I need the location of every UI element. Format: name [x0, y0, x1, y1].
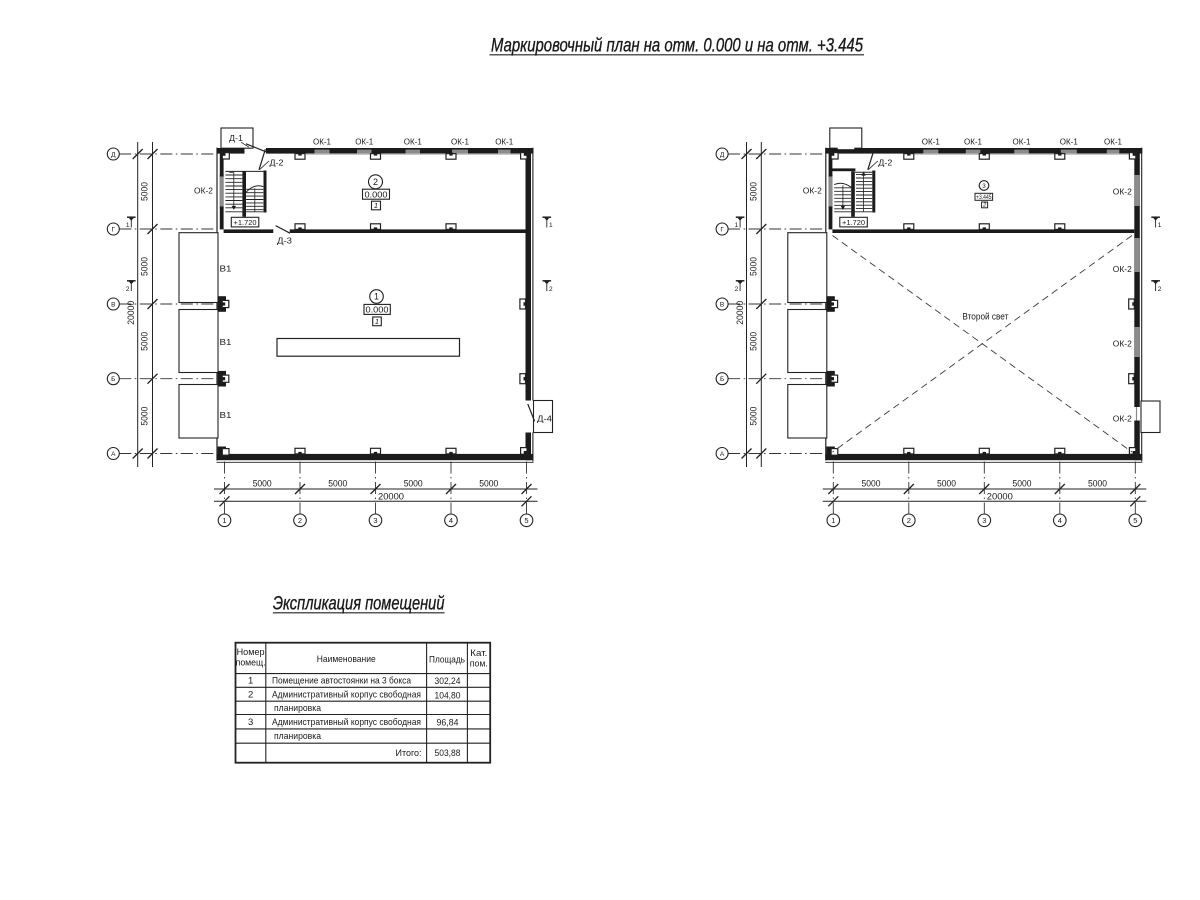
svg-text:96,84: 96,84: [437, 717, 459, 727]
svg-text:Д: Д: [111, 151, 116, 158]
svg-text:1: 1: [735, 222, 739, 229]
svg-text:1: 1: [248, 676, 253, 687]
svg-text:ОК-1: ОК-1: [964, 137, 982, 147]
svg-text:ОК-1: ОК-1: [451, 137, 469, 147]
svg-text:ОК-2: ОК-2: [803, 186, 822, 196]
svg-text:Д-4: Д-4: [537, 414, 552, 424]
svg-text:5000: 5000: [140, 182, 150, 201]
svg-text:302,24: 302,24: [435, 676, 461, 686]
svg-text:1: 1: [374, 292, 379, 302]
svg-text:3: 3: [373, 516, 377, 525]
svg-text:ОК-2: ОК-2: [194, 186, 213, 196]
svg-text:5000: 5000: [253, 478, 272, 488]
svg-text:Наименование: Наименование: [317, 654, 376, 665]
svg-text:планировка: планировка: [274, 731, 322, 741]
svg-text:В1: В1: [220, 264, 232, 274]
svg-text:Д: Д: [720, 151, 725, 158]
svg-text:Административный корпус свобод: Административный корпус свободная: [272, 717, 421, 727]
svg-text:5000: 5000: [1013, 478, 1032, 488]
svg-text:Б: Б: [720, 376, 724, 383]
svg-text:+1.720: +1.720: [842, 218, 865, 227]
svg-text:Второй свет: Второй свет: [962, 312, 1008, 322]
svg-text:ОК-1: ОК-1: [404, 137, 422, 147]
svg-text:2: 2: [126, 286, 130, 293]
svg-text:Д-2: Д-2: [878, 158, 892, 168]
svg-text:Маркировочный план на отм. 0.0: Маркировочный план на отм. 0.000 и на от…: [491, 35, 863, 56]
svg-text:ОК-1: ОК-1: [355, 137, 373, 147]
svg-text:5000: 5000: [328, 478, 347, 488]
svg-text:ОК-1: ОК-1: [1013, 137, 1031, 147]
svg-text:Г: Г: [720, 226, 724, 233]
svg-text:4: 4: [1058, 516, 1062, 525]
svg-text:Б: Б: [111, 376, 115, 383]
svg-text:5000: 5000: [937, 478, 956, 488]
svg-text:5000: 5000: [140, 332, 150, 351]
svg-text:Д-3: Д-3: [277, 236, 292, 246]
svg-text:А: А: [720, 451, 725, 458]
svg-text:ОК-1: ОК-1: [495, 137, 513, 147]
svg-text:Кат.: Кат.: [470, 648, 487, 658]
svg-text:1: 1: [374, 201, 378, 210]
svg-text:20000: 20000: [735, 301, 745, 325]
svg-text:5000: 5000: [862, 478, 881, 488]
svg-text:3: 3: [982, 516, 986, 525]
svg-text:5000: 5000: [479, 478, 498, 488]
svg-text:3: 3: [982, 183, 986, 190]
svg-text:помещ.: помещ.: [236, 658, 266, 668]
svg-text:+3.445: +3.445: [976, 194, 992, 201]
svg-text:5000: 5000: [748, 407, 758, 426]
svg-text:2: 2: [549, 286, 553, 293]
svg-text:2: 2: [1158, 286, 1162, 293]
svg-text:503,88: 503,88: [435, 748, 461, 758]
svg-text:2: 2: [248, 690, 253, 701]
svg-text:2: 2: [982, 203, 986, 209]
svg-text:5000: 5000: [748, 257, 758, 276]
svg-text:А: А: [111, 451, 116, 458]
svg-text:1: 1: [1158, 222, 1162, 229]
svg-text:Г: Г: [112, 226, 116, 233]
svg-text:5: 5: [524, 516, 528, 525]
svg-text:В1: В1: [220, 410, 232, 420]
svg-text:1: 1: [375, 317, 379, 326]
svg-text:5000: 5000: [748, 182, 758, 201]
svg-text:2: 2: [907, 516, 911, 525]
svg-text:2: 2: [373, 177, 378, 187]
svg-text:5000: 5000: [748, 332, 758, 351]
svg-text:В1: В1: [220, 337, 232, 347]
svg-text:104,80: 104,80: [435, 690, 461, 700]
svg-text:Итого:: Итого:: [396, 748, 422, 758]
svg-text:ОК-1: ОК-1: [1060, 137, 1078, 147]
svg-text:20000: 20000: [126, 301, 136, 325]
svg-text:В: В: [720, 301, 724, 308]
svg-text:Д-1: Д-1: [229, 133, 243, 143]
svg-text:ОК-1: ОК-1: [922, 137, 940, 147]
svg-text:ОК-2: ОК-2: [1113, 187, 1132, 197]
svg-text:пом.: пом.: [470, 659, 488, 669]
svg-text:20000: 20000: [987, 492, 1013, 502]
svg-text:планировка: планировка: [274, 703, 322, 713]
svg-text:Номер: Номер: [237, 647, 265, 657]
svg-text:ОК-2: ОК-2: [1113, 264, 1132, 274]
svg-text:5000: 5000: [1088, 478, 1107, 488]
svg-text:4: 4: [449, 516, 453, 525]
svg-text:0.000: 0.000: [365, 189, 388, 199]
svg-text:Площадь: Площадь: [429, 654, 465, 665]
svg-text:В: В: [111, 301, 115, 308]
svg-text:ОК-1: ОК-1: [1104, 137, 1122, 147]
svg-text:20000: 20000: [378, 492, 404, 502]
svg-text:5: 5: [1133, 516, 1137, 525]
svg-text:Административный корпус свобод: Административный корпус свободная: [272, 690, 421, 700]
svg-text:ОК-2: ОК-2: [1113, 413, 1132, 423]
svg-text:1: 1: [549, 222, 553, 229]
svg-text:3: 3: [248, 717, 253, 728]
svg-text:0.000: 0.000: [366, 305, 389, 315]
svg-text:5000: 5000: [140, 407, 150, 426]
svg-text:5000: 5000: [404, 478, 423, 488]
svg-text:2: 2: [735, 286, 739, 293]
svg-text:Д-2: Д-2: [270, 158, 284, 168]
svg-text:5000: 5000: [140, 257, 150, 276]
svg-text:1: 1: [831, 516, 835, 525]
svg-text:1: 1: [126, 222, 130, 229]
svg-text:ОК-2: ОК-2: [1113, 339, 1132, 349]
svg-text:1: 1: [222, 516, 226, 525]
svg-text:+1.720: +1.720: [234, 218, 257, 227]
svg-text:Помещение автостоянки на 3 бок: Помещение автостоянки на 3 бокса: [272, 676, 412, 686]
svg-text:2: 2: [298, 516, 302, 525]
svg-text:ОК-1: ОК-1: [313, 137, 331, 147]
svg-text:Экспликация помещений: Экспликация помещений: [273, 593, 445, 614]
